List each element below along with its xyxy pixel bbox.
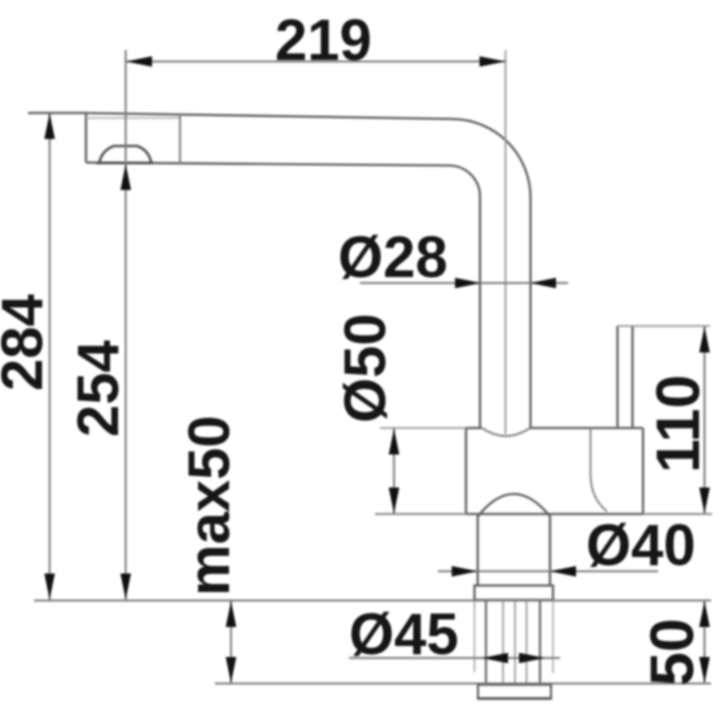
svg-text:219: 219 <box>275 8 372 73</box>
svg-text:50: 50 <box>638 618 706 686</box>
svg-text:Ø28: Ø28 <box>338 225 448 290</box>
svg-text:Ø50: Ø50 <box>333 313 398 423</box>
svg-text:254: 254 <box>66 340 131 437</box>
svg-text:284: 284 <box>0 294 55 391</box>
svg-text:Ø45: Ø45 <box>349 602 459 667</box>
svg-text:max50: max50 <box>177 415 242 596</box>
svg-text:110: 110 <box>644 375 712 473</box>
svg-text:Ø40: Ø40 <box>586 513 696 578</box>
